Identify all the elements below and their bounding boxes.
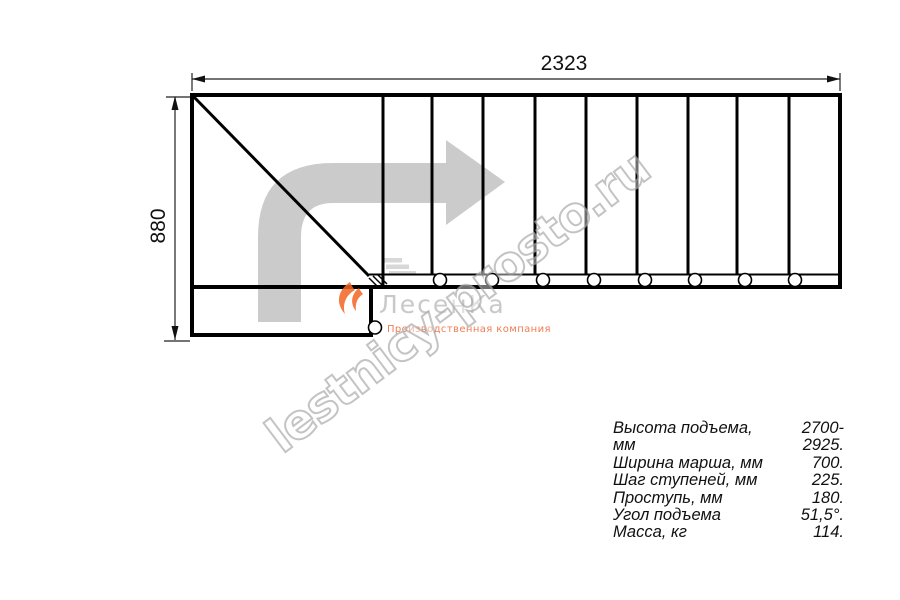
spec-value: 51,5°. <box>801 507 844 524</box>
spec-value: 180. <box>812 490 844 507</box>
spec-label: Ширина марша, мм <box>613 455 763 472</box>
spec-row: Высота подъема, мм 2700-2925. <box>613 420 844 455</box>
dim-height-label: 880 <box>147 208 171 243</box>
spec-row: Угол подъема 51,5°. <box>613 507 844 524</box>
spec-row: Масса, кг 114. <box>613 524 844 541</box>
spec-row: Ширина марша, мм 700. <box>613 455 844 472</box>
spec-label: Высота подъема, мм <box>613 420 767 455</box>
dim-width-label: 2323 <box>522 52 606 76</box>
spec-value: 700. <box>812 455 844 472</box>
spec-value: 114. <box>813 524 844 541</box>
spec-value: 2700-2925. <box>767 420 844 455</box>
spec-label: Шаг ступеней, мм <box>613 472 757 489</box>
spec-label: Проступь, мм <box>613 490 723 507</box>
spec-row: Проступь, мм 180. <box>613 490 844 507</box>
spec-label: Угол подъема <box>613 507 721 524</box>
spec-value: 225. <box>812 472 844 489</box>
spec-row: Шаг ступеней, мм 225. <box>613 472 844 489</box>
specs-table: Высота подъема, мм 2700-2925. Ширина мар… <box>613 420 844 542</box>
staircase-plan-page: 2323 880 ЛесенКа Производственная компан… <box>0 0 900 600</box>
spec-label: Масса, кг <box>613 524 687 541</box>
